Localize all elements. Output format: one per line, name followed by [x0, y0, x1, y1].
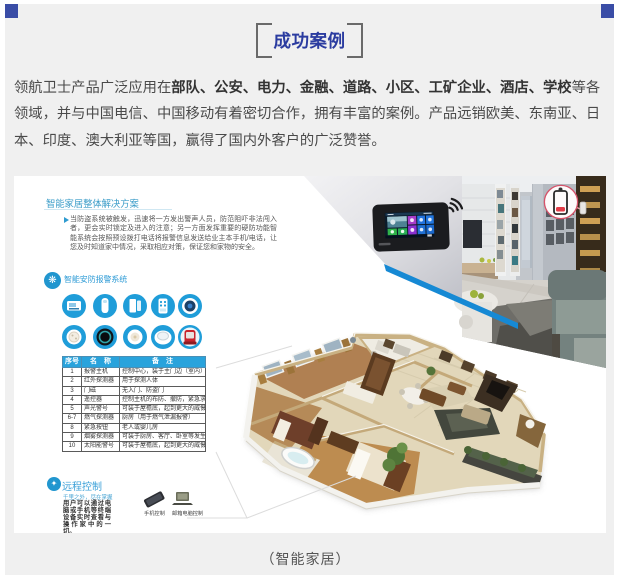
svg-text:手机控制: 手机控制 [144, 509, 165, 517]
svg-text:邮箱电脑控制: 邮箱电脑控制 [172, 509, 203, 517]
